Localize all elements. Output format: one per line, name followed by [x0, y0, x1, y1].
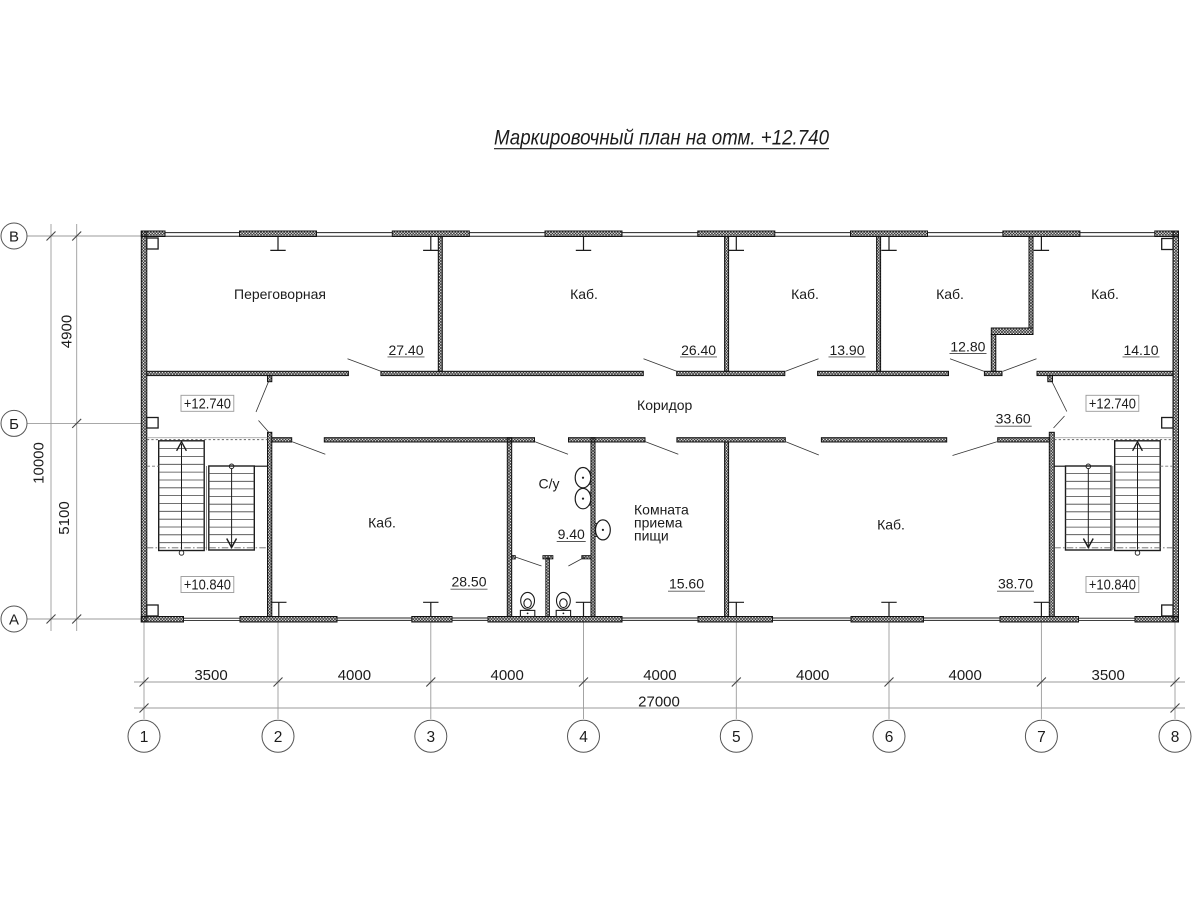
svg-text:пищи: пищи [634, 528, 669, 544]
svg-text:3500: 3500 [194, 667, 227, 684]
svg-text:3500: 3500 [1092, 667, 1125, 684]
svg-text:Каб.: Каб. [877, 517, 905, 533]
svg-text:7: 7 [1037, 729, 1046, 746]
svg-text:Каб.: Каб. [1091, 286, 1119, 302]
svg-text:4000: 4000 [949, 667, 982, 684]
svg-text:15.60: 15.60 [669, 576, 704, 592]
svg-text:+10.840: +10.840 [184, 577, 231, 594]
svg-text:+10.840: +10.840 [1089, 577, 1136, 594]
svg-text:4000: 4000 [643, 667, 676, 684]
svg-text:А: А [9, 612, 19, 629]
svg-text:5: 5 [732, 729, 741, 746]
svg-text:+12.740: +12.740 [1089, 395, 1136, 412]
svg-text:10000: 10000 [31, 442, 48, 484]
svg-text:8: 8 [1171, 729, 1180, 746]
svg-text:1: 1 [140, 729, 149, 746]
svg-text:38.70: 38.70 [998, 576, 1033, 592]
svg-text:Б: Б [9, 416, 19, 433]
svg-text:12.80: 12.80 [950, 339, 985, 355]
svg-text:Каб.: Каб. [368, 515, 396, 531]
svg-text:4: 4 [579, 729, 588, 746]
svg-text:В: В [9, 229, 19, 246]
svg-text:Каб.: Каб. [791, 286, 819, 302]
svg-text:+12.740: +12.740 [184, 395, 231, 412]
svg-text:Коридор: Коридор [637, 397, 693, 413]
svg-text:Маркировочный план на отм. +12: Маркировочный план на отм. +12.740 [494, 125, 829, 149]
svg-text:2: 2 [274, 729, 283, 746]
svg-text:Переговорная: Переговорная [234, 286, 326, 302]
svg-text:33.60: 33.60 [996, 411, 1031, 427]
svg-text:Каб.: Каб. [936, 286, 964, 302]
svg-text:26.40: 26.40 [681, 342, 716, 358]
svg-text:4000: 4000 [491, 667, 524, 684]
svg-text:6: 6 [885, 729, 894, 746]
svg-text:4000: 4000 [338, 667, 371, 684]
svg-text:9.40: 9.40 [558, 526, 585, 542]
svg-text:3: 3 [426, 729, 435, 746]
svg-text:13.90: 13.90 [829, 342, 864, 358]
svg-text:5100: 5100 [56, 501, 73, 534]
svg-text:27.40: 27.40 [388, 342, 423, 358]
svg-text:С/у: С/у [539, 476, 560, 492]
svg-text:4900: 4900 [59, 315, 76, 348]
svg-text:14.10: 14.10 [1123, 342, 1158, 358]
svg-text:28.50: 28.50 [451, 574, 486, 590]
svg-text:27000: 27000 [638, 694, 680, 711]
svg-text:Каб.: Каб. [570, 286, 598, 302]
svg-text:4000: 4000 [796, 667, 829, 684]
